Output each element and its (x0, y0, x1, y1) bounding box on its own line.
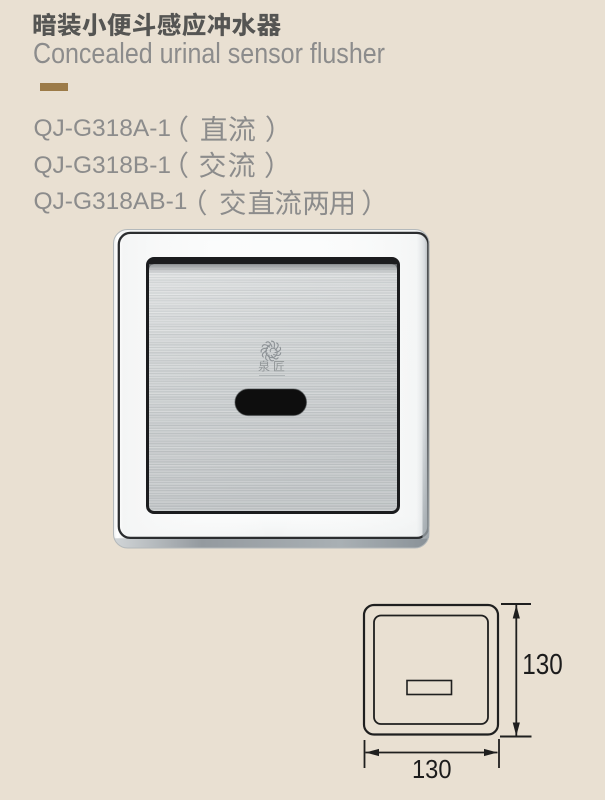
svg-text:130: 130 (412, 754, 452, 784)
svg-text:130: 130 (522, 649, 563, 681)
